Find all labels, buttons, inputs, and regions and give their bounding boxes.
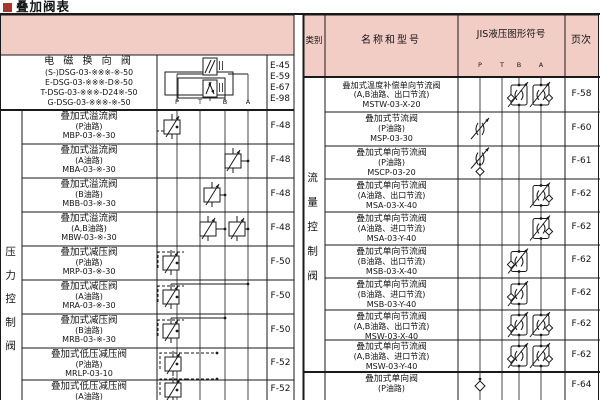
valve-circuit: (P油路) — [378, 159, 405, 167]
port-label: P — [478, 62, 482, 69]
valve-name: 电 磁 换 向 阀 — [44, 57, 134, 68]
valve-circuit: (P油路) — [75, 259, 102, 267]
valve-circuit: (B油路) — [75, 327, 103, 335]
page-ref: F-62 — [572, 190, 592, 200]
page-ref: F-62 — [572, 289, 592, 299]
valve-name: 叠加式单向节流阀 — [356, 313, 426, 322]
page-ref: F-61 — [572, 157, 592, 167]
valve-name: 叠加式单向节流阀 — [356, 215, 426, 224]
header-page: 页次 — [571, 36, 591, 47]
valve-name: 叠加式单向节流阀 — [356, 149, 426, 158]
valve-circuit: (P油路) — [378, 385, 405, 393]
valve-circuit: (A油路) — [75, 393, 103, 400]
port-label: B — [223, 99, 227, 106]
valve-model: MRLP-03-10 — [65, 370, 113, 378]
page-ref: F-50 — [271, 326, 291, 336]
catalog-page: 叠加阀表 类别 名称和型号 JIS液压图形符号 页次 压力控制阀 流量控制阀 电… — [0, 0, 600, 400]
page-ref: F-64 — [572, 381, 592, 391]
valve-circuit: (P油路) — [75, 123, 102, 131]
valve-model: T-DSG-03-※※※-D24※-50 — [40, 89, 137, 97]
valve-model: (S-)DSG-03-※※※-※-50 — [45, 69, 133, 77]
page-ref: F-62 — [572, 320, 592, 330]
page-ref: F-62 — [572, 256, 592, 266]
valve-model: MBB-03-※-30 — [62, 200, 116, 208]
valve-circuit: (A,B油路) — [71, 225, 107, 233]
valve-circuit: (P油路) — [378, 125, 405, 133]
page-ref: F-48 — [271, 122, 291, 132]
valve-model: MSW-03-Y-40 — [366, 363, 418, 371]
valve-name: 叠加式单向节流阀 — [356, 281, 426, 290]
valve-model: MSP-03-30 — [370, 135, 413, 143]
valve-model: MBA-03-※-30 — [62, 166, 115, 174]
page-ref: F-58 — [572, 90, 592, 100]
valve-circuit: (A,B油路、出口节流) — [354, 323, 430, 331]
port-label: T — [198, 99, 202, 106]
valve-circuit: (A油路、出口节流) — [358, 192, 426, 200]
valve-model: MSA-03-Y-40 — [367, 235, 416, 243]
header-jis-symbol: JIS液压图形符号 — [477, 30, 546, 40]
valve-circuit: (A,B油路、出口节流) — [354, 91, 430, 99]
valve-model: MSW-03-X-40 — [365, 333, 418, 341]
page-ref: F-50 — [271, 292, 291, 302]
page-ref: E-67 — [270, 84, 290, 93]
port-label: A — [539, 62, 543, 69]
left-category-label: 压力控制阀 — [4, 246, 15, 364]
valve-name: 叠加式温度补偿单向节流阀 — [342, 81, 440, 90]
valve-circuit: (A油路) — [75, 157, 103, 165]
valve-circuit: (A,B油路、进口节流) — [354, 353, 430, 361]
valve-circuit: (P油路) — [75, 361, 102, 369]
page-ref: F-52 — [271, 359, 291, 369]
valve-circuit: (B油路、出口节流) — [358, 258, 426, 266]
valve-model: MSB-03-X-40 — [366, 268, 417, 276]
port-label: B — [517, 62, 521, 69]
valve-circuit: (A油路、进口节流) — [358, 225, 426, 233]
valve-model: MSB-03-Y-40 — [367, 301, 416, 309]
valve-circuit: (B油路) — [75, 191, 103, 199]
valve-name: 叠加式单向阀 — [365, 375, 418, 384]
valve-name: 叠加式节流阀 — [365, 115, 418, 124]
port-label: T — [500, 62, 504, 69]
page-ref: F-48 — [271, 190, 291, 200]
valve-model: MSTW-03-X-20 — [362, 101, 420, 109]
valve-name: 叠加式单向节流阀 — [356, 343, 426, 352]
page-ref: F-62 — [572, 223, 592, 233]
page-ref: F-48 — [271, 156, 291, 166]
valve-model: MBP-03-※-30 — [63, 132, 116, 140]
valve-name: 叠加式单向节流阀 — [356, 182, 426, 191]
valve-circuit: (A油路) — [75, 293, 103, 301]
valve-model: MBW-03-※-30 — [61, 234, 116, 242]
valve-model: E-DSG-03-※※※-D※-50 — [45, 79, 133, 87]
section-marker-icon — [3, 3, 12, 12]
port-label: P — [175, 99, 179, 106]
valve-model: MRA-03-※-30 — [62, 302, 115, 310]
header-category: 类别 — [305, 37, 322, 46]
page-ref: F-60 — [572, 124, 592, 134]
valve-model: MRB-03-※-30 — [62, 336, 116, 344]
page-ref: E-45 — [270, 62, 290, 71]
page-ref: E-59 — [270, 73, 290, 82]
valve-name: 叠加式单向节流阀 — [356, 248, 426, 257]
valve-model: MSA-03-X-40 — [366, 202, 417, 210]
right-category-label: 流量控制阀 — [306, 172, 317, 295]
page-ref: F-62 — [572, 351, 592, 361]
page-ref: F-50 — [271, 258, 291, 268]
page-title: 叠加阀表 — [16, 0, 70, 13]
valve-model: MRP-03-※-30 — [63, 268, 116, 276]
port-label: A — [246, 99, 250, 106]
valve-circuit: (B油路、进口节流) — [358, 291, 426, 299]
page-ref: E-98 — [270, 95, 290, 104]
valve-model: MSCP-03-20 — [367, 169, 415, 177]
page-ref: F-52 — [271, 385, 291, 395]
page-ref: F-48 — [271, 224, 291, 234]
header-name-model: 名称和型号 — [361, 36, 421, 47]
valve-model: G-DSG-03-※※※-※-50 — [47, 99, 130, 107]
